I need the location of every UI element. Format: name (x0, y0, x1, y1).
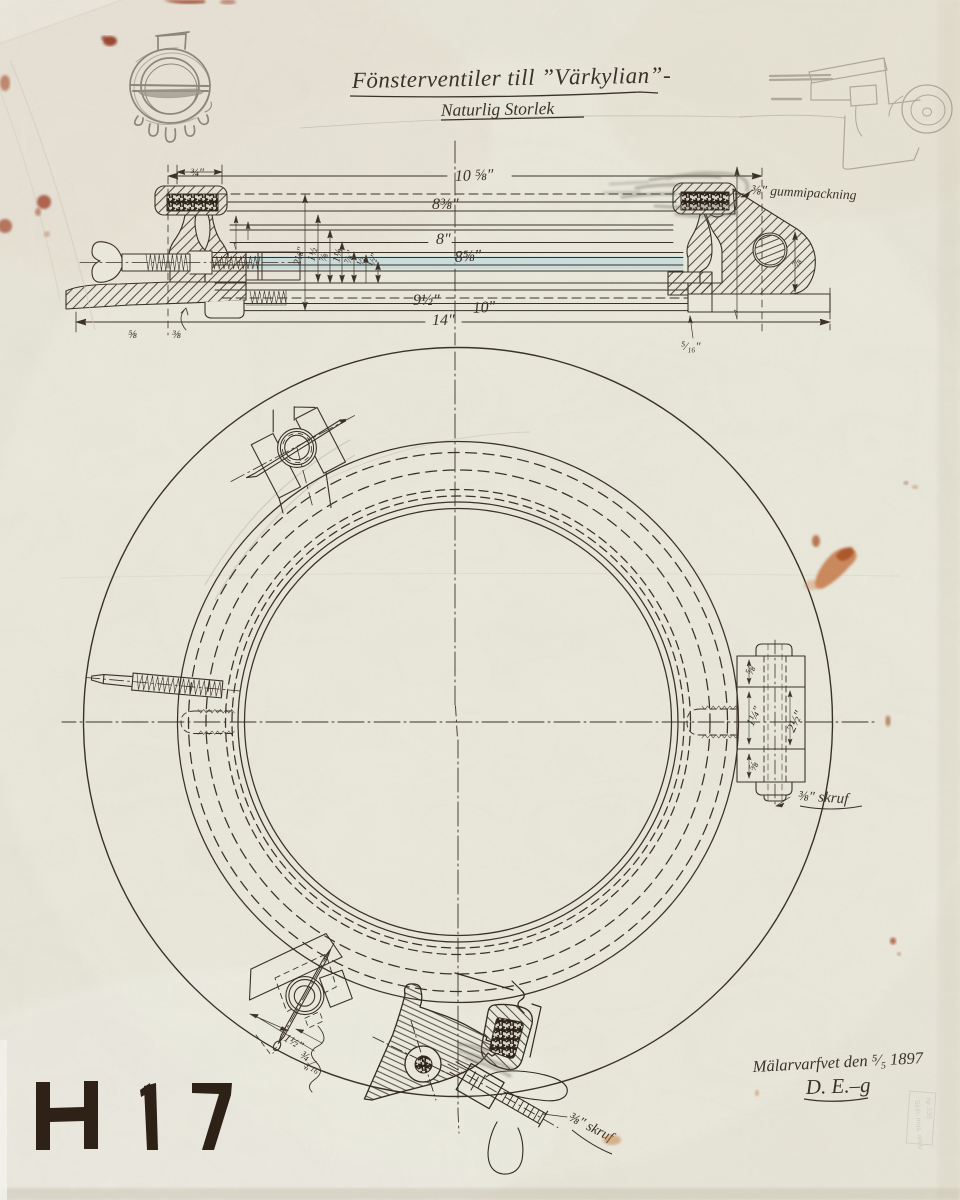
svg-text:Naturlig Storlek: Naturlig Storlek (440, 98, 556, 120)
svg-text:¾″: ¾″ (190, 165, 205, 179)
svg-text:⅝: ⅝ (128, 327, 137, 341)
svg-text:⁵⁄₁₆″: ⁵⁄₁₆″ (681, 339, 702, 353)
svg-text:14″: 14″ (432, 312, 455, 329)
svg-text:⅜: ⅜ (172, 327, 181, 341)
svg-text:Nr 338: Nr 338 (924, 1098, 932, 1120)
svg-text:8⅝″: 8⅝″ (454, 247, 482, 266)
svg-text:9½″: 9½″ (413, 292, 440, 309)
svg-text:D. E.–g: D. E.–g (804, 1073, 871, 1099)
svg-text:8⅜″: 8⅜″ (432, 196, 459, 213)
svg-text:10″: 10″ (472, 298, 496, 317)
svg-text:8″: 8″ (436, 231, 451, 248)
svg-text:10 ⅝″: 10 ⅝″ (455, 167, 495, 185)
